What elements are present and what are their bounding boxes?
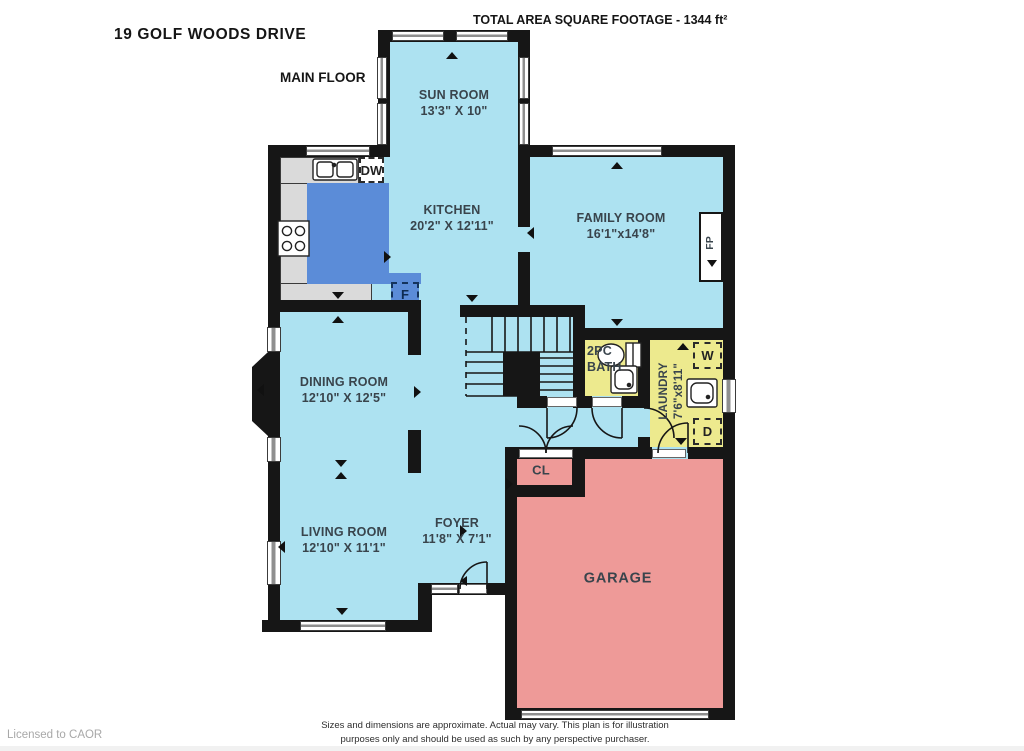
wall bbox=[518, 157, 530, 227]
bottom-strip bbox=[0, 746, 1024, 751]
garage-door bbox=[521, 710, 709, 719]
wall bbox=[268, 300, 418, 312]
washer-box: W bbox=[693, 342, 722, 369]
dining-room-label: DINING ROOM 12'10" X 12'5" bbox=[300, 374, 388, 407]
wall bbox=[573, 305, 585, 408]
wall bbox=[577, 396, 592, 408]
window bbox=[431, 584, 458, 594]
window bbox=[306, 146, 370, 156]
floor-title: MAIN FLOOR bbox=[280, 70, 366, 85]
wall bbox=[573, 328, 735, 340]
kitchen-label: KITCHEN 20'2" X 12'11" bbox=[410, 202, 494, 235]
window bbox=[267, 437, 281, 462]
sunroom-label: SUN ROOM 13'3" X 10" bbox=[419, 87, 489, 120]
dryer-box: D bbox=[693, 418, 722, 445]
address-title: 19 GOLF WOODS DRIVE bbox=[114, 26, 306, 44]
living-room-label: LIVING ROOM 12'10" X 11'1" bbox=[301, 524, 387, 557]
window bbox=[722, 379, 736, 413]
license-note: Licensed to CAOR bbox=[7, 729, 102, 741]
kitchen-island bbox=[307, 183, 389, 274]
door-opening bbox=[592, 397, 622, 407]
window bbox=[552, 146, 662, 156]
dishwasher-box: DW bbox=[359, 157, 384, 183]
disclaimer: Sizes and dimensions are approximate. Ac… bbox=[310, 719, 680, 747]
wall bbox=[505, 485, 585, 497]
floor-plan: DW F W D bbox=[0, 0, 1024, 751]
wall bbox=[723, 145, 735, 720]
window bbox=[267, 541, 281, 585]
washer-label: W bbox=[701, 348, 713, 363]
door-opening bbox=[652, 449, 686, 458]
wall bbox=[517, 396, 547, 408]
wall bbox=[408, 430, 421, 473]
laundry-label: LAUNDRY 7'6"x8'11" bbox=[657, 362, 687, 419]
door-opening bbox=[547, 397, 577, 407]
fireplace-label: FP bbox=[704, 236, 718, 249]
window bbox=[377, 103, 387, 145]
window bbox=[392, 31, 444, 41]
window bbox=[519, 57, 529, 99]
door-opening bbox=[519, 449, 573, 458]
window bbox=[456, 31, 508, 41]
window bbox=[377, 57, 387, 99]
closet-label: CL bbox=[532, 463, 550, 480]
window bbox=[519, 103, 529, 145]
kitchen-counter-top bbox=[280, 157, 359, 184]
wall bbox=[408, 300, 421, 355]
wall bbox=[638, 328, 650, 408]
front-stoop bbox=[430, 595, 517, 632]
total-area-title: TOTAL AREA SQUARE FOOTAGE - 1344 ft² bbox=[473, 13, 727, 27]
bath-label: 2PC BATH bbox=[587, 343, 622, 376]
garage-label: GARAGE bbox=[584, 570, 652, 589]
window bbox=[267, 327, 281, 352]
bay-window-wall bbox=[252, 352, 268, 436]
foyer-label: FOYER 11'8" X 7'1" bbox=[422, 515, 492, 548]
front-door-opening bbox=[459, 584, 487, 594]
wall bbox=[688, 447, 735, 459]
dryer-label: D bbox=[703, 424, 712, 439]
wall bbox=[460, 305, 585, 317]
dishwasher-label: DW bbox=[361, 163, 383, 178]
window bbox=[300, 621, 386, 631]
wall bbox=[622, 396, 638, 408]
family-room-label: FAMILY ROOM 16'1"x14'8" bbox=[576, 210, 665, 243]
